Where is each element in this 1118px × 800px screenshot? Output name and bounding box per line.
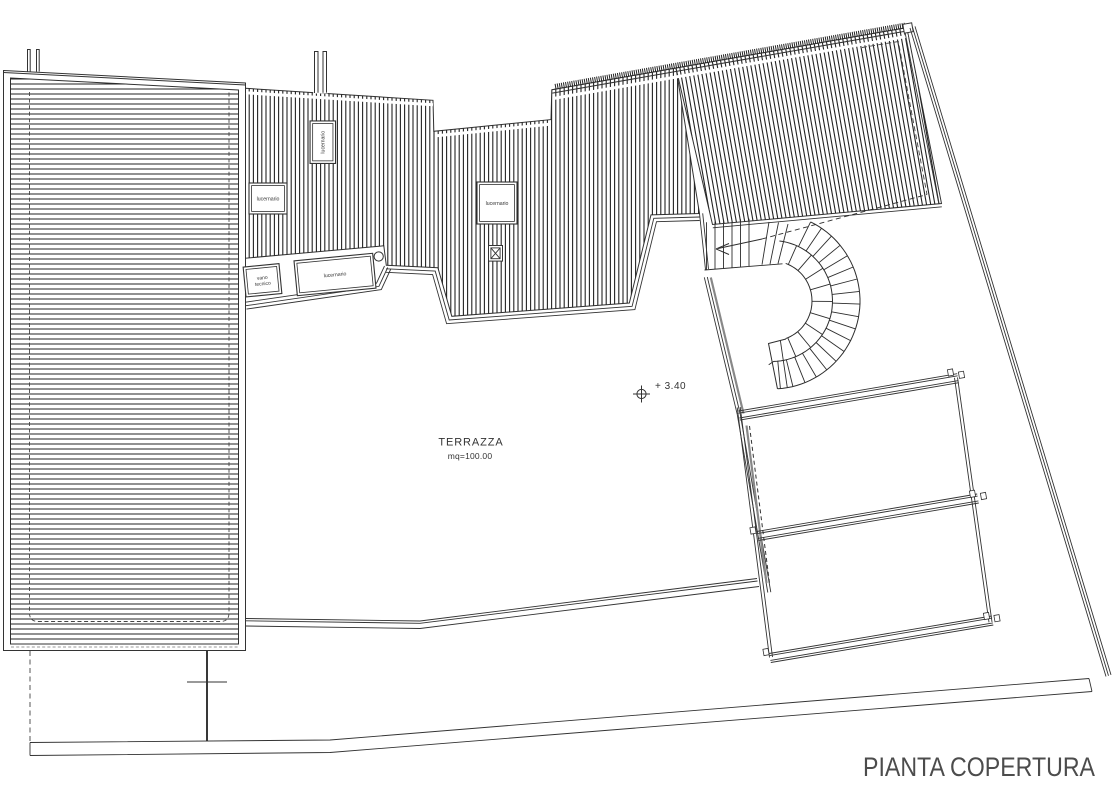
svg-text:lucernario: lucernario <box>321 131 327 154</box>
svg-text:TERRAZZA: TERRAZZA <box>438 437 503 449</box>
svg-text:mq=100.00: mq=100.00 <box>448 451 493 461</box>
svg-text:PIANTA COPERTURA: PIANTA COPERTURA <box>863 752 1095 782</box>
svg-text:lucernario: lucernario <box>486 201 509 207</box>
svg-text:lucernario: lucernario <box>257 196 280 202</box>
svg-text:+ 3.40: + 3.40 <box>655 381 686 392</box>
